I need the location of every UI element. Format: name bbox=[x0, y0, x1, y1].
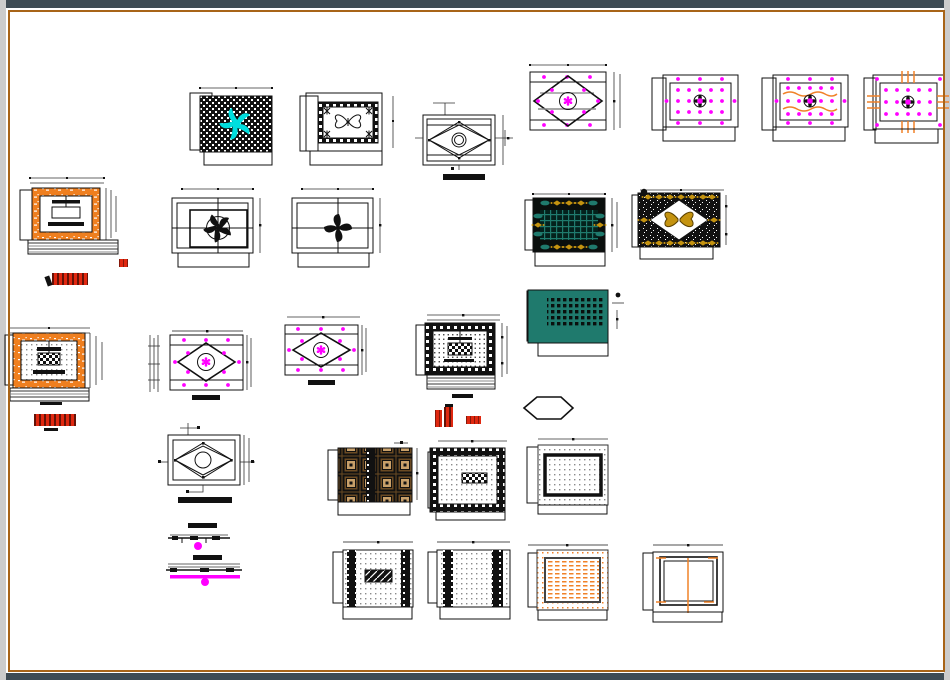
panel-diamond-leader-plan[interactable] bbox=[156, 418, 261, 508]
fan-hub-icon bbox=[694, 95, 707, 108]
panel-teal-panel-ceiling[interactable] bbox=[520, 285, 632, 359]
panel-pop-fan-ceiling-ticks[interactable] bbox=[858, 62, 950, 146]
red-marker bbox=[119, 259, 128, 267]
panel-diamond-detail-plan[interactable] bbox=[415, 98, 515, 186]
panel-teal-grid-ceiling[interactable] bbox=[520, 190, 630, 272]
panel-gold-diamond-ceiling[interactable] bbox=[628, 185, 736, 263]
red-stamp-small bbox=[466, 416, 481, 424]
fan-hub-icon bbox=[804, 95, 817, 108]
panel-ceiling-fan-plan-b[interactable] bbox=[288, 182, 388, 272]
teal-ornament-icon bbox=[540, 201, 549, 206]
title-bar bbox=[308, 380, 335, 385]
panel-black-border-ceiling[interactable] bbox=[410, 310, 515, 402]
title-bar bbox=[188, 523, 217, 528]
magenta-drop bbox=[194, 542, 202, 550]
panel-orange-frame-elevation[interactable] bbox=[16, 172, 126, 284]
red-title-stamp-3 bbox=[435, 410, 442, 427]
panel-inner-frame-ceiling[interactable] bbox=[522, 432, 622, 520]
panel-dotted-diamond-plan-a[interactable] bbox=[144, 326, 256, 404]
fan-hub-icon bbox=[902, 96, 915, 109]
stamp-underline bbox=[44, 428, 58, 431]
panel-ceiling-fan-plan-a[interactable] bbox=[168, 182, 268, 272]
panel-side-band-ceiling[interactable] bbox=[328, 536, 423, 621]
stamp-mark bbox=[445, 404, 453, 407]
flower-hub-icon bbox=[317, 345, 326, 354]
left-section-lines bbox=[148, 335, 160, 392]
panel-checkered-fan-ceiling[interactable] bbox=[188, 84, 280, 170]
panel-ceiling-sections[interactable] bbox=[160, 518, 252, 594]
title-bar bbox=[193, 555, 222, 560]
panel-orange-hatch-ceiling[interactable] bbox=[520, 540, 620, 625]
panel-hexagon-detail[interactable] bbox=[520, 394, 578, 424]
title-bar bbox=[192, 395, 220, 400]
title-bar bbox=[178, 497, 232, 503]
ceiling-fan-icon bbox=[203, 214, 232, 243]
title-bar bbox=[443, 174, 485, 180]
flower-hub-icon bbox=[202, 357, 211, 366]
window-bottom-bar bbox=[0, 673, 950, 680]
red-stamp-block bbox=[444, 407, 453, 427]
panel-greek-key-ceiling[interactable] bbox=[424, 432, 519, 522]
magenta-cove bbox=[170, 575, 240, 579]
panel-dotted-diamond-plan-b[interactable] bbox=[280, 312, 370, 390]
panel-plain-frame-ceiling[interactable] bbox=[640, 540, 735, 625]
panel-four-band-ceiling[interactable] bbox=[424, 536, 519, 621]
window-top-bar bbox=[0, 0, 950, 8]
title-bar bbox=[40, 402, 62, 405]
flower-hub-icon bbox=[564, 96, 573, 105]
red-title-stamp-2 bbox=[34, 414, 76, 426]
pinwheel-fan-icon bbox=[324, 214, 352, 242]
panel-pop-fan-ceiling-a[interactable] bbox=[648, 68, 748, 148]
cad-sheet bbox=[0, 0, 950, 680]
title-bar bbox=[452, 394, 473, 398]
panel-coffered-ceiling[interactable] bbox=[324, 438, 424, 520]
panel-butterfly-border-ceiling[interactable] bbox=[296, 88, 400, 168]
panel-pop-fan-ceiling-wavy[interactable] bbox=[758, 68, 858, 148]
panel-dotted-diamond-ceiling[interactable] bbox=[524, 60, 629, 136]
magenta-drop bbox=[201, 578, 209, 586]
red-title-stamp-1 bbox=[52, 273, 88, 285]
